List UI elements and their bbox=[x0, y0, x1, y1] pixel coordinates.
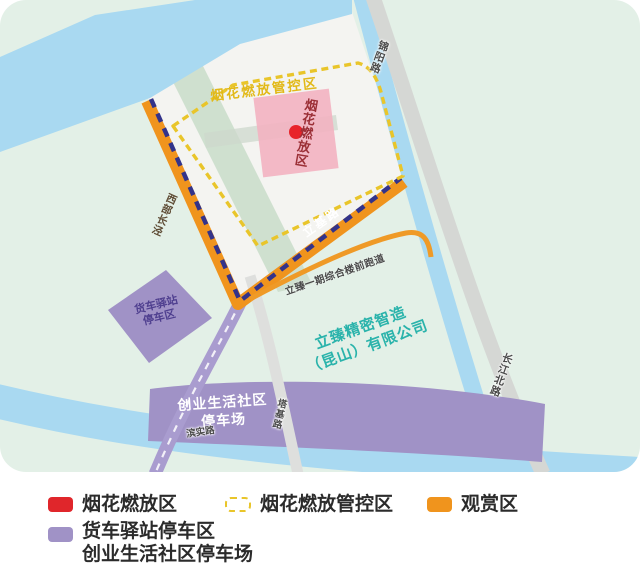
fireworks-zone-map-page: 烟花燃放管控区 烟花燃放区 立臻精密智造 （昆山）有限公司 货车驿站 停车区 创… bbox=[0, 0, 640, 569]
legend-swatch-parking bbox=[48, 527, 73, 542]
legend-swatch-viewing-zone bbox=[427, 497, 452, 512]
legend-swatch-control-zone bbox=[225, 497, 251, 512]
legend-label-parking-line2: 创业生活社区停车场 bbox=[82, 543, 253, 566]
legend-item-control-zone: 烟花燃放管控区 bbox=[225, 495, 393, 514]
truck-station-parking-area bbox=[108, 270, 212, 363]
legend-item-fireworks-zone: 烟花燃放区 bbox=[48, 495, 177, 514]
legend-item-viewing-zone: 观赏区 bbox=[427, 495, 518, 514]
legend-swatch-fireworks-zone bbox=[48, 497, 73, 512]
legend-item-parking: 货车驿站停车区 创业生活社区停车场 bbox=[48, 520, 253, 566]
legend-label-viewing-zone: 观赏区 bbox=[461, 495, 518, 514]
map-geometry bbox=[0, 0, 640, 472]
legend-label-control-zone: 烟花燃放管控区 bbox=[260, 495, 393, 514]
map-canvas: 烟花燃放管控区 烟花燃放区 立臻精密智造 （昆山）有限公司 货车驿站 停车区 创… bbox=[0, 0, 640, 472]
legend-label-fireworks-zone: 烟花燃放区 bbox=[82, 495, 177, 514]
legend-label-parking: 货车驿站停车区 创业生活社区停车场 bbox=[82, 520, 253, 566]
fireworks-point-marker bbox=[289, 125, 303, 139]
map-legend: 烟花燃放区 烟花燃放管控区 观赏区 货车驿站停车区 创业生活社区停车场 bbox=[0, 472, 640, 569]
legend-label-parking-line1: 货车驿站停车区 bbox=[82, 520, 253, 543]
